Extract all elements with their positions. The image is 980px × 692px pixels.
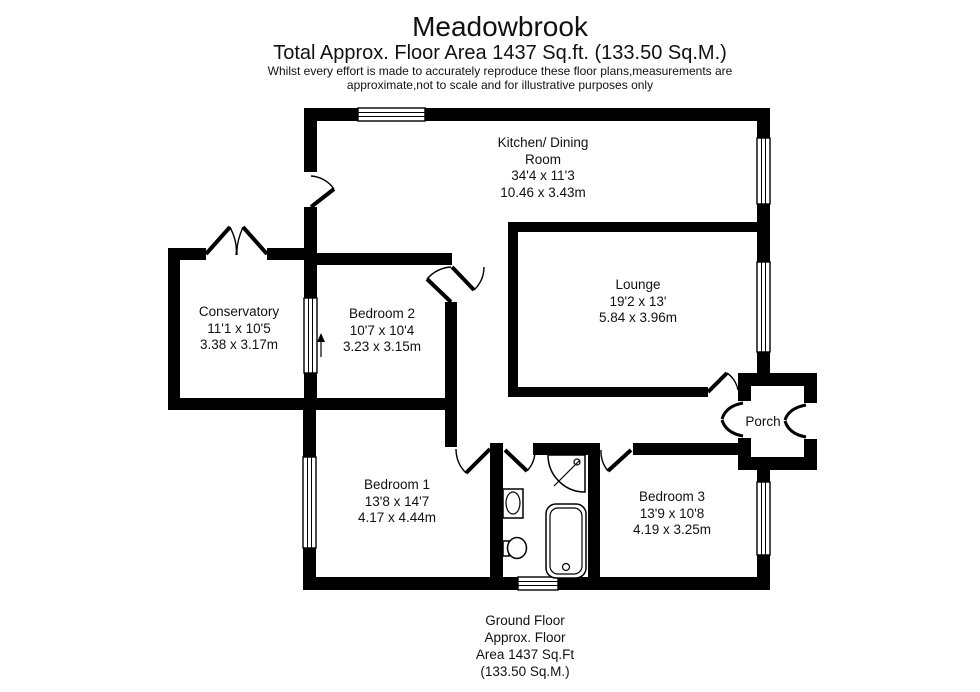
window-kitchen-right [757, 138, 770, 204]
window-kitchen-top [358, 108, 425, 121]
door-lounge-porch [708, 373, 738, 392]
door-bedroom3 [601, 450, 631, 471]
wall-bedroom3-top [633, 443, 738, 455]
slide-arrow-head [317, 333, 325, 342]
window-conservatory-bedroom2 [304, 298, 325, 373]
toilet [503, 538, 527, 559]
room-label-porch: Porch [745, 414, 780, 431]
shower [548, 455, 585, 492]
floor-plan-page: Meadowbrook Total Approx. Floor Area 143… [0, 0, 980, 692]
disclaimer-line-2: approximate,not to scale and for illustr… [347, 79, 653, 92]
room-label-lounge: Lounge19'2 x 13'5.84 x 3.96m [599, 277, 677, 327]
floor-plan-drawing [0, 0, 980, 692]
wall-bathroom-right [588, 455, 600, 577]
door-porch-inner [722, 403, 743, 436]
wall-lounge-bottom [508, 387, 708, 397]
wall-bedroom1-bathroom [490, 443, 503, 577]
total-area-subtitle: Total Approx. Floor Area 1437 Sq.ft. (13… [273, 42, 727, 64]
wall-conservatory-top-b [267, 248, 310, 260]
wall-porch-right-b [804, 439, 817, 457]
doors [206, 176, 806, 473]
room-label-bedroom-1: Bedroom 113'8 x 14'74.17 x 4.44m [358, 477, 436, 527]
wall-left-upper-a [304, 108, 317, 172]
door-bathroom [505, 450, 535, 471]
window-bedroom3-right [757, 482, 770, 555]
door-kitchen-hallway [452, 267, 484, 290]
window-lounge-right [757, 262, 770, 352]
window-bathroom-bottom [518, 577, 558, 590]
wall-bedroom2-top [304, 253, 452, 265]
door-kitchen-side [311, 176, 334, 207]
door-conservatory-french [206, 227, 267, 255]
room-label-bedroom-3: Bedroom 313'9 x 10'84.19 x 3.25m [633, 489, 711, 539]
wall-porch-left-b [738, 438, 751, 457]
wall-bathroom-top [533, 443, 600, 455]
wall-porch-right-a [804, 386, 817, 403]
sink [503, 489, 523, 518]
window-bedroom1-left [303, 457, 316, 548]
disclaimer-line-1: Whilst every effort is made to accuratel… [268, 65, 733, 78]
wall-lounge-top [508, 222, 770, 232]
door-bedroom2 [427, 267, 451, 302]
room-label-bedroom-2: Bedroom 210'7 x 10'43.23 x 3.15m [343, 306, 421, 356]
room-label-conservatory: Conservatory11'1 x 10'53.38 x 3.17m [199, 304, 279, 354]
room-label-kitchen-dining: Kitchen/ DiningRoom34'4 x 11'310.46 x 3.… [498, 135, 589, 201]
wall-porch-left-a [738, 386, 751, 401]
door-porch-front [785, 405, 806, 437]
wall-bedroom2-right [445, 302, 457, 447]
wall-conservatory-top-a [168, 248, 206, 260]
page-title: Meadowbrook [412, 12, 588, 42]
bathroom-fixtures [503, 455, 586, 578]
ground-floor-area-note: Ground FloorApprox. FloorArea 1437 Sq.Ft… [476, 612, 574, 680]
door-bedroom1 [456, 449, 490, 473]
wall-lounge-left [508, 222, 518, 397]
bathtub [546, 504, 586, 578]
wall-conservatory-left [168, 248, 180, 410]
wall-mid-horizontal [168, 398, 457, 410]
wall-porch-bottom [738, 457, 817, 470]
wall-porch-top [738, 373, 817, 386]
